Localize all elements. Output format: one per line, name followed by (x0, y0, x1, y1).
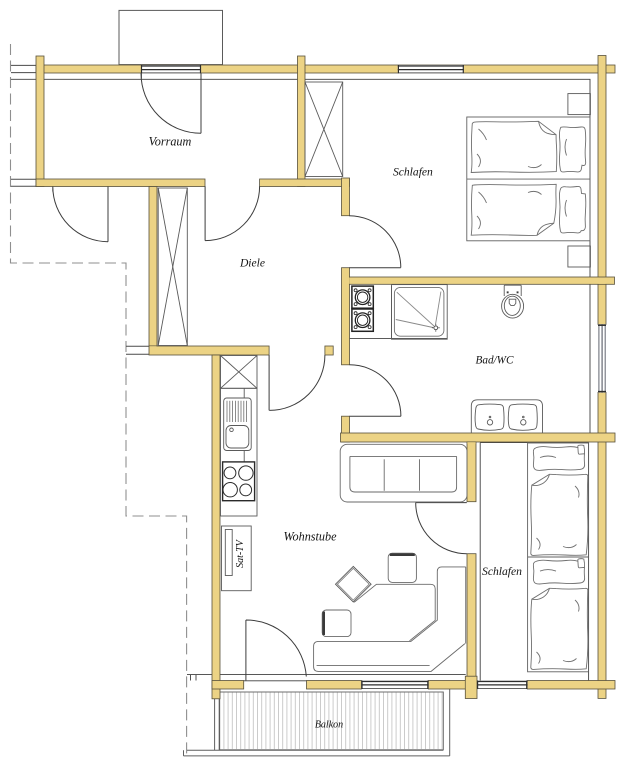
svg-text:Balkon: Balkon (315, 720, 343, 731)
svg-text:Wohnstube: Wohnstube (283, 530, 337, 544)
svg-text:Schlafen: Schlafen (393, 166, 433, 179)
svg-text:Vorraum: Vorraum (149, 135, 192, 149)
svg-text:Sat-TV: Sat-TV (235, 538, 246, 568)
svg-text:Diele: Diele (239, 257, 265, 270)
svg-text:Bad/WC: Bad/WC (476, 355, 514, 367)
svg-text:Schlafen: Schlafen (482, 565, 522, 578)
